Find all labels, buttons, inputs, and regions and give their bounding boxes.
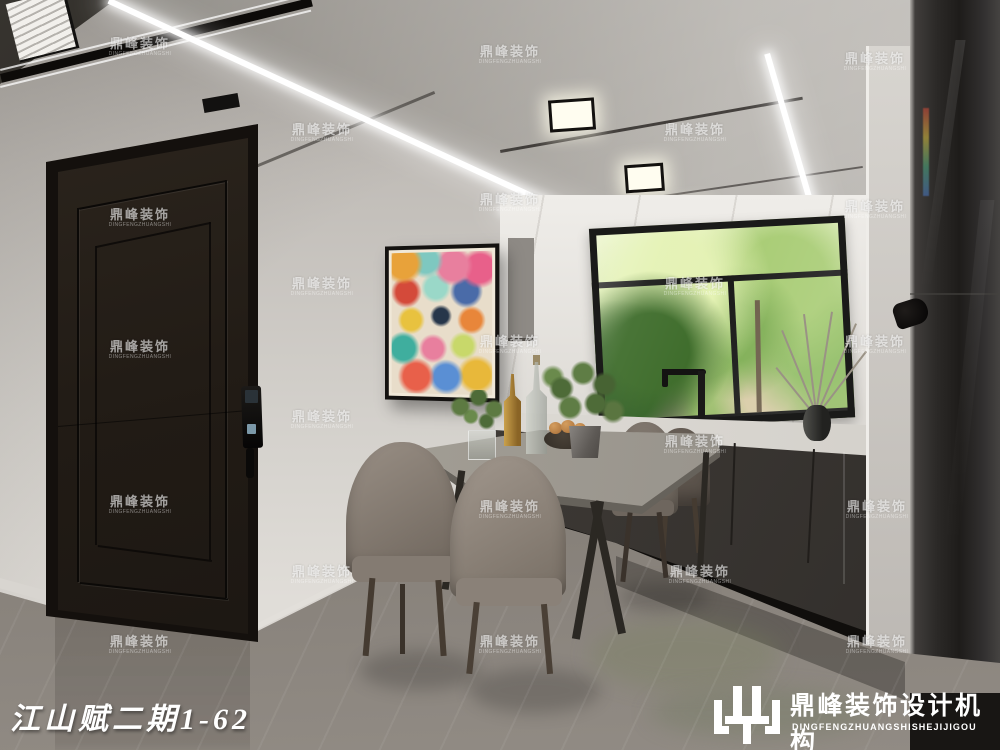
faucet-nozzle [662, 369, 668, 387]
recessed-downlight [624, 163, 665, 194]
door-inner-molding [209, 222, 211, 560]
recessed-downlight [548, 97, 596, 132]
company-logo: 鼎峰装饰设计机构 DINGFENGZHUANGSHISHEJIJIGOU [700, 682, 1000, 746]
logo-chinese-name: 鼎峰装饰设计机构 [790, 686, 1000, 750]
potted-plant [540, 358, 626, 434]
door-inner-molding [95, 246, 97, 545]
refrigerator-seam [910, 293, 1000, 295]
chair-leg [400, 584, 405, 654]
lock-keypad-light [247, 424, 256, 434]
glass-vase [468, 430, 496, 460]
logo-english-name: DINGFENGZHUANGSHISHEJIJIGOU [792, 722, 977, 732]
faucet-riser [698, 371, 705, 425]
interior-rendering: 鼎峰装饰DINGFENGZHUANGSHI鼎峰装饰DINGFENGZHUANGS… [0, 0, 1000, 750]
branch [820, 351, 867, 412]
doodle-artwork [385, 243, 499, 402]
lock-handle [246, 448, 254, 478]
chair-seat [456, 578, 562, 606]
refrigerator-edge-highlight [910, 0, 915, 695]
chair-seat [352, 556, 456, 582]
cabinet-corner-highlight [843, 452, 845, 584]
branch-vase [803, 405, 831, 441]
project-caption: 江山赋二期1-62 [10, 694, 251, 738]
door-molding [225, 180, 227, 598]
upper-cabinet [508, 238, 534, 341]
lock-screen [245, 390, 258, 403]
artwork-canvas [392, 251, 492, 396]
door-molding [77, 208, 79, 582]
concrete-planter [566, 426, 604, 458]
artwork-reflection [923, 108, 929, 196]
logo-mark-icon [714, 686, 780, 744]
marble-column [866, 46, 912, 694]
